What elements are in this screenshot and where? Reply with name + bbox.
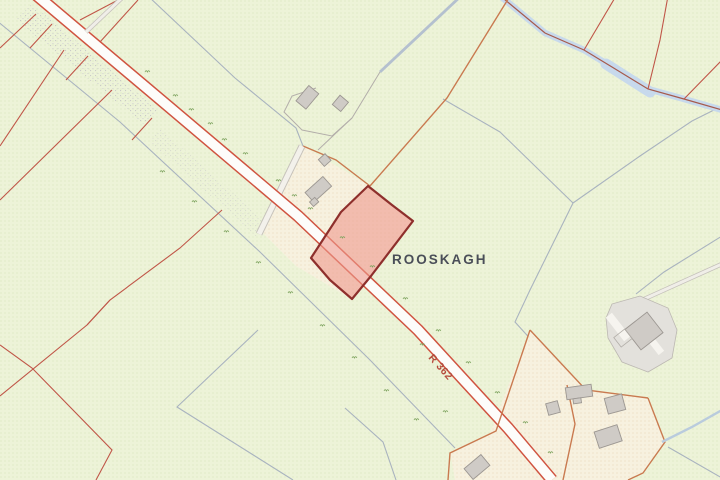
map-canvas[interactable]: ROOSKAGH R 362: [0, 0, 720, 480]
building: [573, 398, 582, 404]
building: [546, 401, 561, 416]
townland-label: ROOSKAGH: [392, 252, 488, 267]
ordnance-map: ROOSKAGH R 362: [0, 0, 720, 480]
